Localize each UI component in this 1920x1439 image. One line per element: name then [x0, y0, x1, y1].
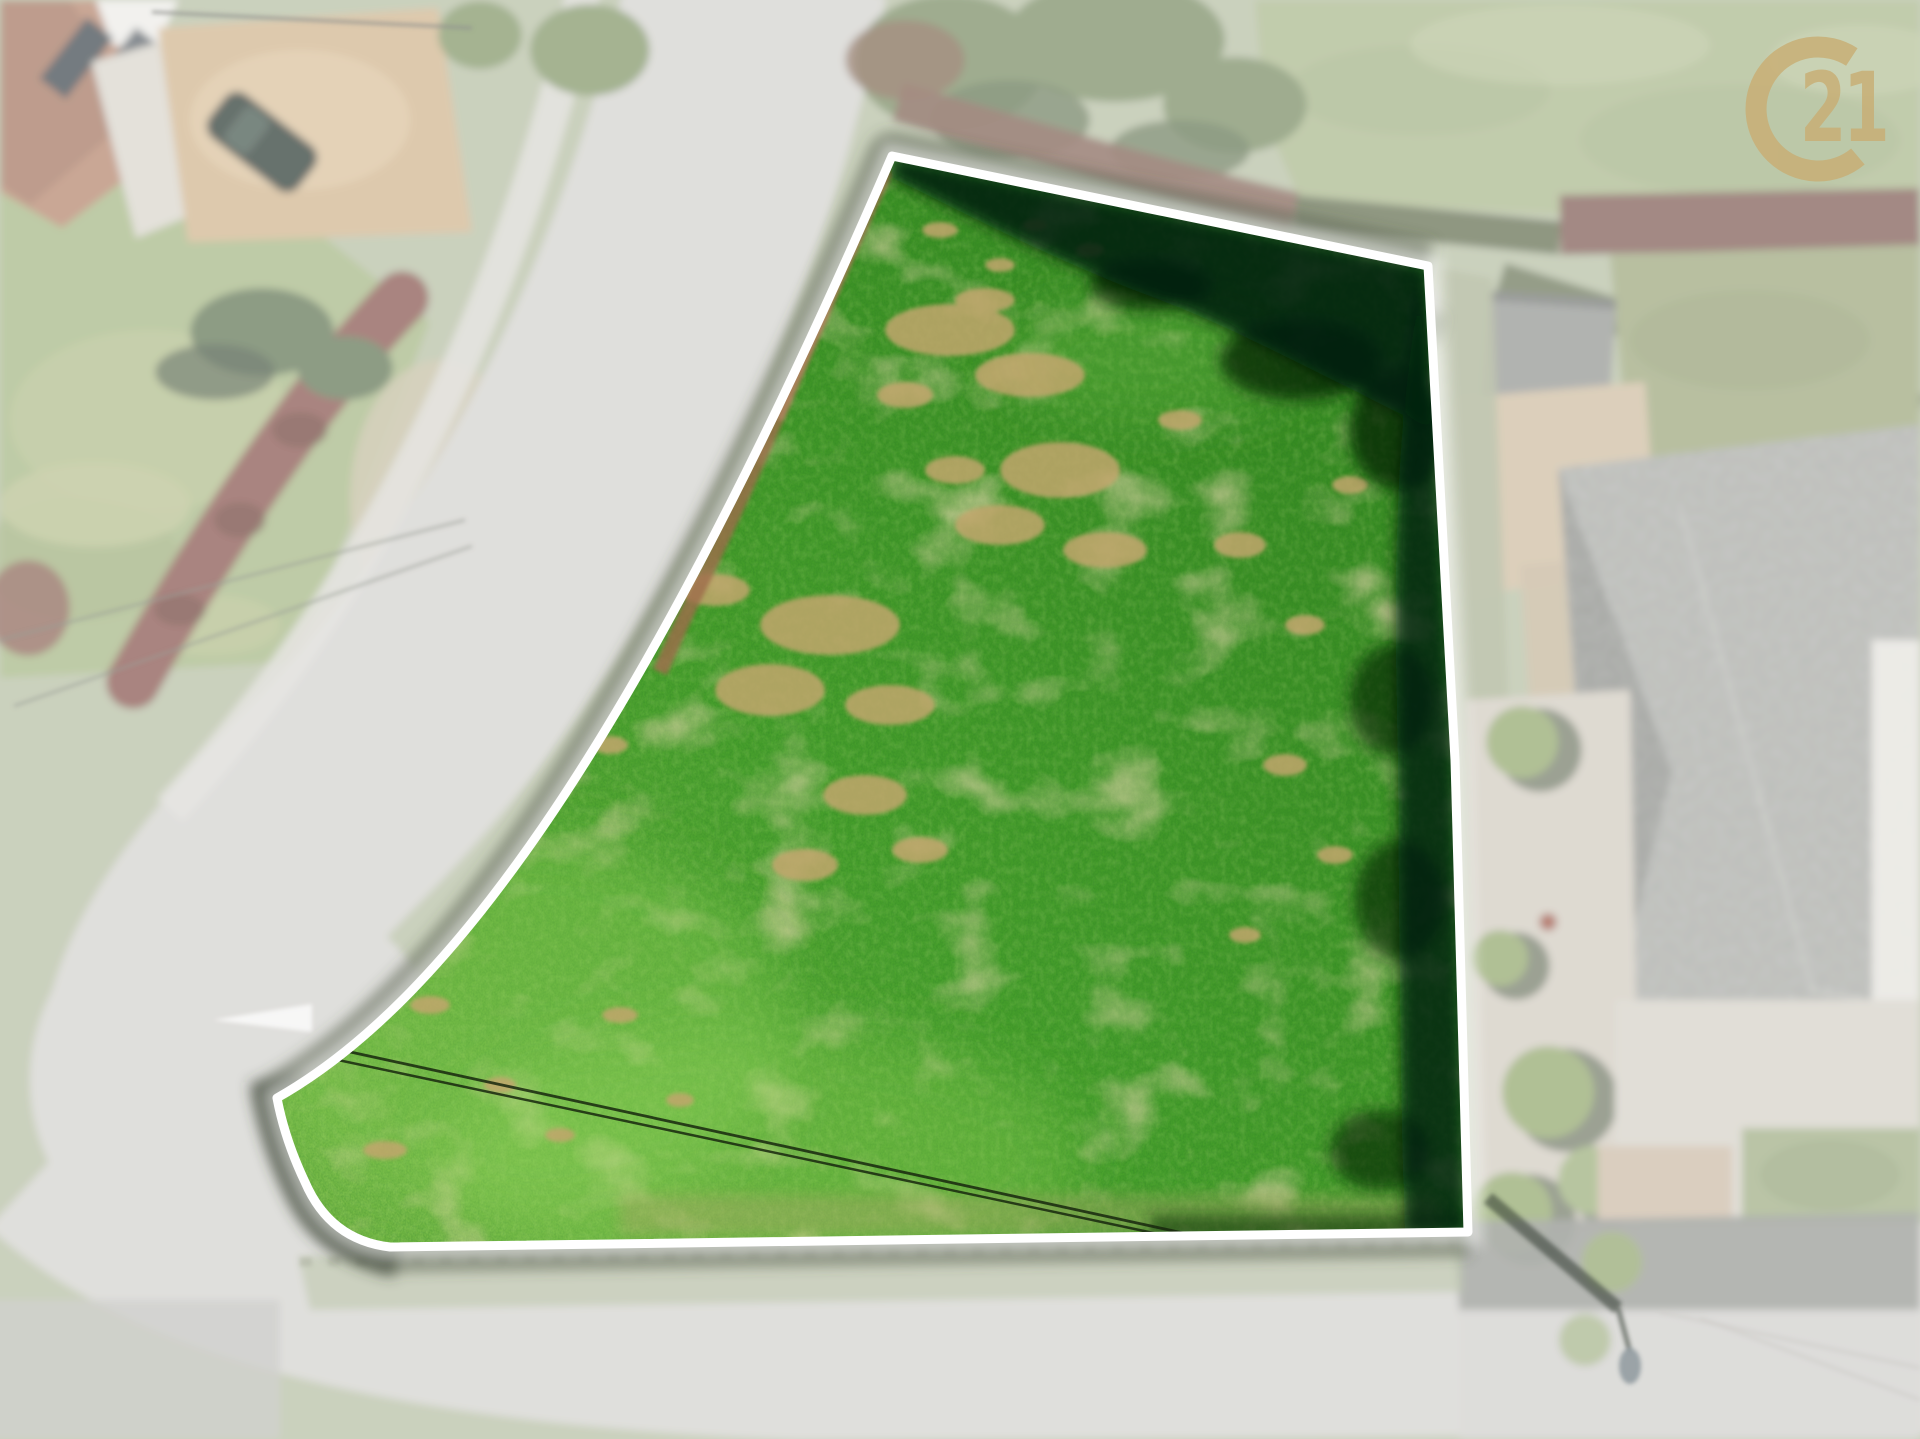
logo-text: 21: [1800, 52, 1887, 164]
aerial-photo: 21: [0, 0, 1920, 1439]
